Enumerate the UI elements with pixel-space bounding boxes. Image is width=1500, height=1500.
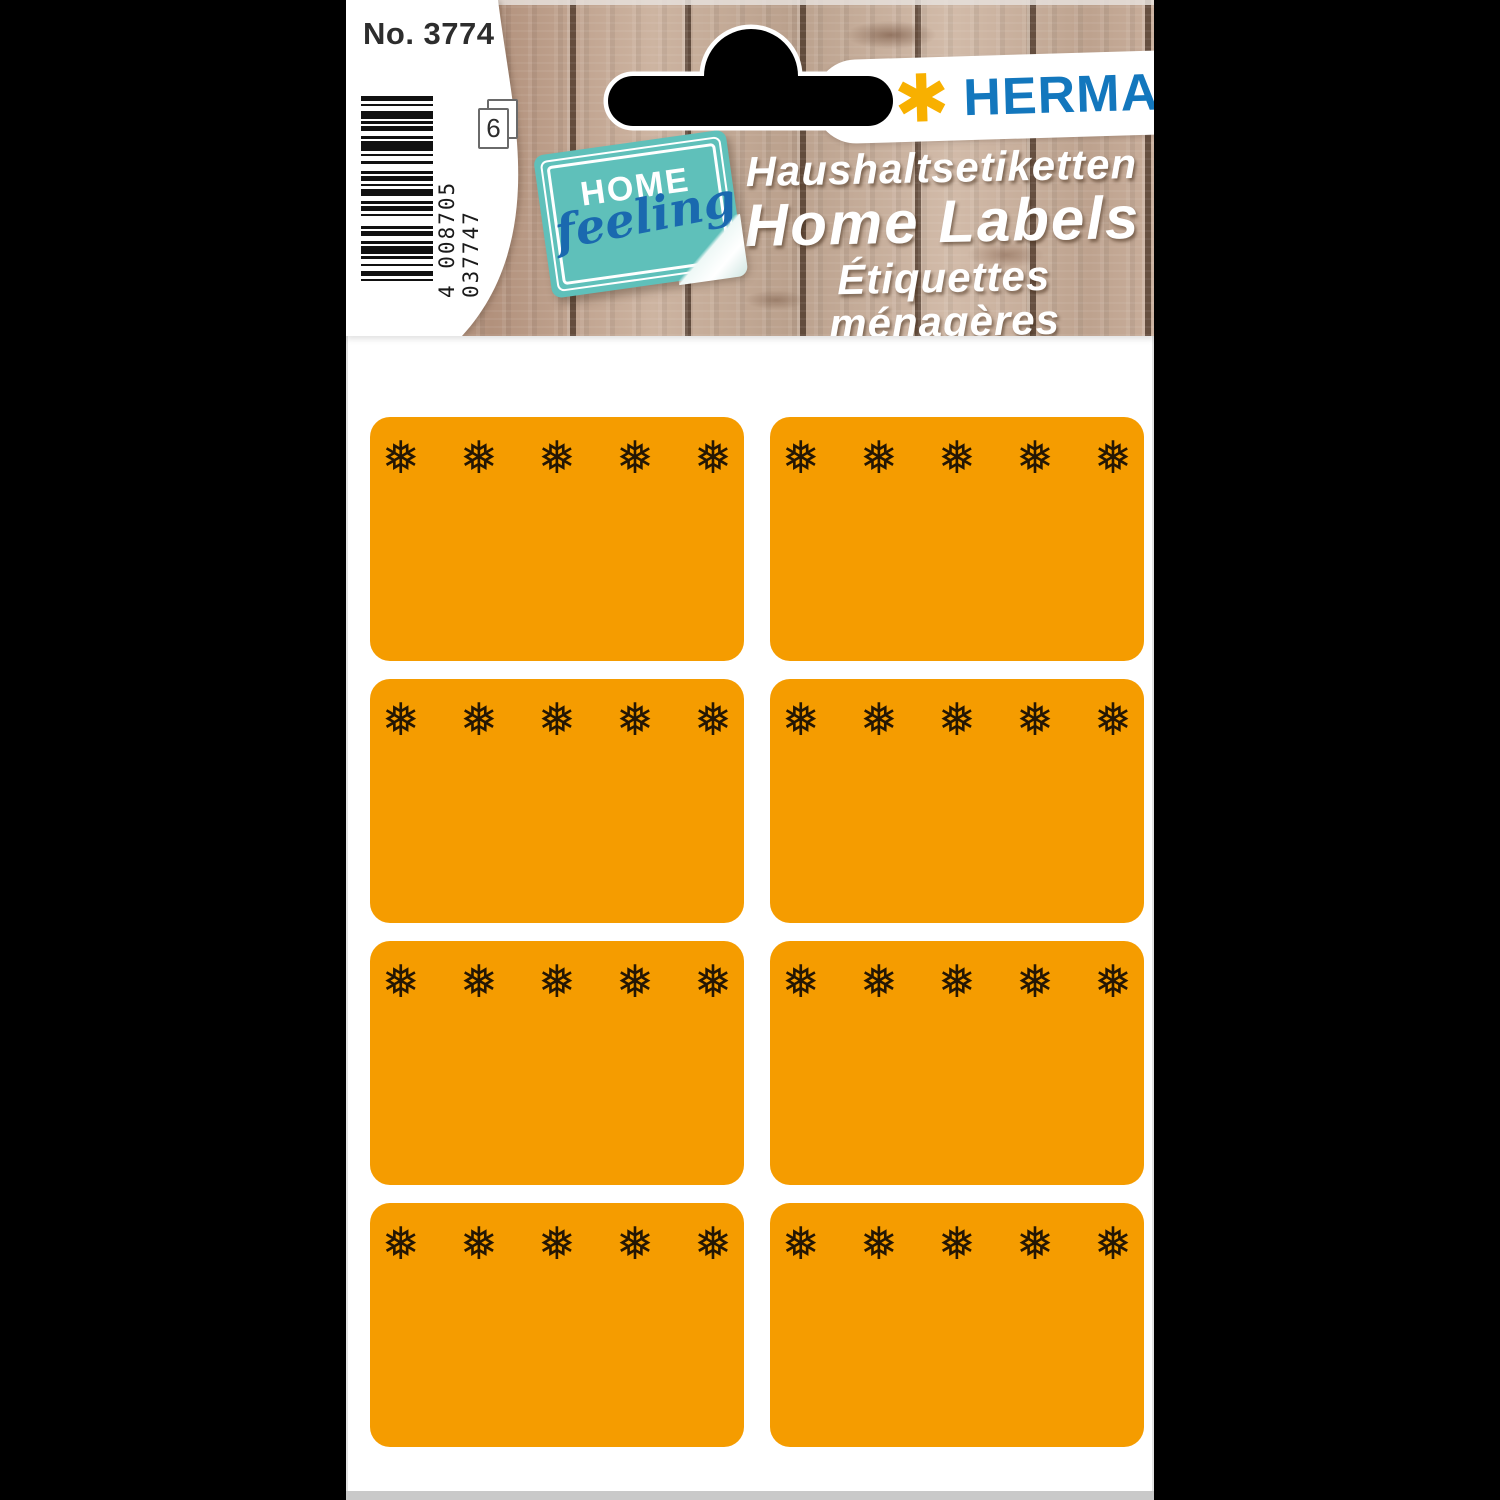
snowflake-icon: ❅	[782, 1221, 820, 1266]
barcode-bars	[361, 96, 433, 298]
sheet-front-page: 6	[478, 108, 509, 149]
snowflake-icon: ❅	[1094, 697, 1132, 742]
snowflake-icon: ❅	[1016, 1221, 1054, 1266]
snowflake-icon: ❅	[382, 435, 420, 480]
freezer-label: ❅❅❅❅❅	[370, 1203, 744, 1447]
snowflake-icon: ❅	[860, 959, 898, 1004]
barcode-gap	[361, 281, 433, 289]
barcode-gap	[361, 216, 433, 226]
snowflake-icon: ❅	[616, 1221, 654, 1266]
freezer-label: ❅❅❅❅❅	[370, 417, 744, 661]
labels-grid: ❅❅❅❅❅❅❅❅❅❅❅❅❅❅❅❅❅❅❅❅❅❅❅❅❅❅❅❅❅❅❅❅❅❅❅❅❅❅❅❅	[370, 417, 1144, 1447]
snowflake-icon: ❅	[938, 1221, 976, 1266]
snowflake-icon: ❅	[860, 1221, 898, 1266]
barcode-number: 4 008705 037747	[435, 96, 483, 298]
snowflake-row: ❅❅❅❅❅	[770, 697, 1144, 742]
header: Haushaltsetiketten Home Labels Étiquette…	[346, 0, 1154, 336]
freezer-label: ❅❅❅❅❅	[770, 1203, 1144, 1447]
barcode-bar	[361, 246, 433, 254]
barcode-gap	[361, 164, 433, 172]
snowflake-row: ❅❅❅❅❅	[370, 1221, 744, 1266]
snowflake-icon: ❅	[616, 959, 654, 1004]
freezer-label: ❅❅❅❅❅	[770, 941, 1144, 1185]
snowflake-icon: ❅	[1094, 1221, 1132, 1266]
snowflake-icon: ❅	[938, 959, 976, 1004]
snowflake-icon: ❅	[694, 959, 732, 1004]
product-photo: Haushaltsetiketten Home Labels Étiquette…	[0, 0, 1500, 1500]
snowflake-icon: ❅	[1094, 435, 1132, 480]
freezer-label: ❅❅❅❅❅	[370, 679, 744, 923]
snowflake-icon: ❅	[782, 435, 820, 480]
freezer-label: ❅❅❅❅❅	[770, 679, 1144, 923]
snowflake-row: ❅❅❅❅❅	[770, 435, 1144, 480]
snowflake-icon: ❅	[860, 697, 898, 742]
snowflake-icon: ❅	[538, 959, 576, 1004]
snowflake-icon: ❅	[694, 1221, 732, 1266]
snowflake-icon: ❅	[938, 435, 976, 480]
snowflake-icon: ❅	[1016, 697, 1054, 742]
title-en: Home Labels	[727, 188, 1154, 257]
snowflake-icon: ❅	[782, 697, 820, 742]
snowflake-icon: ❅	[860, 435, 898, 480]
barcode: 4 008705 037747	[361, 96, 461, 298]
barcode-bar	[361, 141, 433, 151]
snowflake-icon: ❅	[616, 697, 654, 742]
snowflake-icon: ❅	[382, 1221, 420, 1266]
hang-hole-icon	[586, 0, 916, 140]
sheet-count-icon: 6	[478, 99, 522, 155]
hang-card: Haushaltsetiketten Home Labels Étiquette…	[346, 0, 1154, 1500]
snowflake-icon: ❅	[1016, 959, 1054, 1004]
snowflake-icon: ❅	[538, 697, 576, 742]
herma-wordmark: HERMA	[963, 62, 1154, 128]
snowflake-icon: ❅	[538, 435, 576, 480]
snowflake-row: ❅❅❅❅❅	[370, 959, 744, 1004]
barcode-bar	[361, 111, 433, 119]
snowflake-icon: ❅	[538, 1221, 576, 1266]
snowflake-icon: ❅	[382, 697, 420, 742]
snowflake-icon: ❅	[938, 697, 976, 742]
snowflake-icon: ❅	[1094, 959, 1132, 1004]
snowflake-icon: ❅	[616, 435, 654, 480]
home-feeling-sticker: HOME feeling	[533, 129, 745, 299]
title-fr: Étiquettes ménagères	[728, 252, 1154, 336]
sheet-count-value: 6	[486, 113, 500, 144]
card-bottom-edge	[346, 1491, 1154, 1500]
title-block: Haushaltsetiketten Home Labels Étiquette…	[726, 142, 1154, 336]
article-number: No. 3774	[363, 16, 495, 52]
snowflake-row: ❅❅❅❅❅	[770, 1221, 1144, 1266]
snowflake-icon: ❅	[460, 959, 498, 1004]
snowflake-row: ❅❅❅❅❅	[370, 435, 744, 480]
sticker-corner-curl	[671, 214, 749, 285]
snowflake-icon: ❅	[782, 959, 820, 1004]
snowflake-icon: ❅	[460, 697, 498, 742]
snowflake-icon: ❅	[460, 1221, 498, 1266]
freezer-label: ❅❅❅❅❅	[770, 417, 1144, 661]
barcode-bar	[361, 189, 433, 197]
snowflake-icon: ❅	[1016, 435, 1054, 480]
snowflake-icon: ❅	[694, 697, 732, 742]
snowflake-row: ❅❅❅❅❅	[770, 959, 1144, 1004]
snowflake-icon: ❅	[694, 435, 732, 480]
snowflake-icon: ❅	[382, 959, 420, 1004]
freezer-label: ❅❅❅❅❅	[370, 941, 744, 1185]
snowflake-row: ❅❅❅❅❅	[370, 697, 744, 742]
snowflake-icon: ❅	[460, 435, 498, 480]
